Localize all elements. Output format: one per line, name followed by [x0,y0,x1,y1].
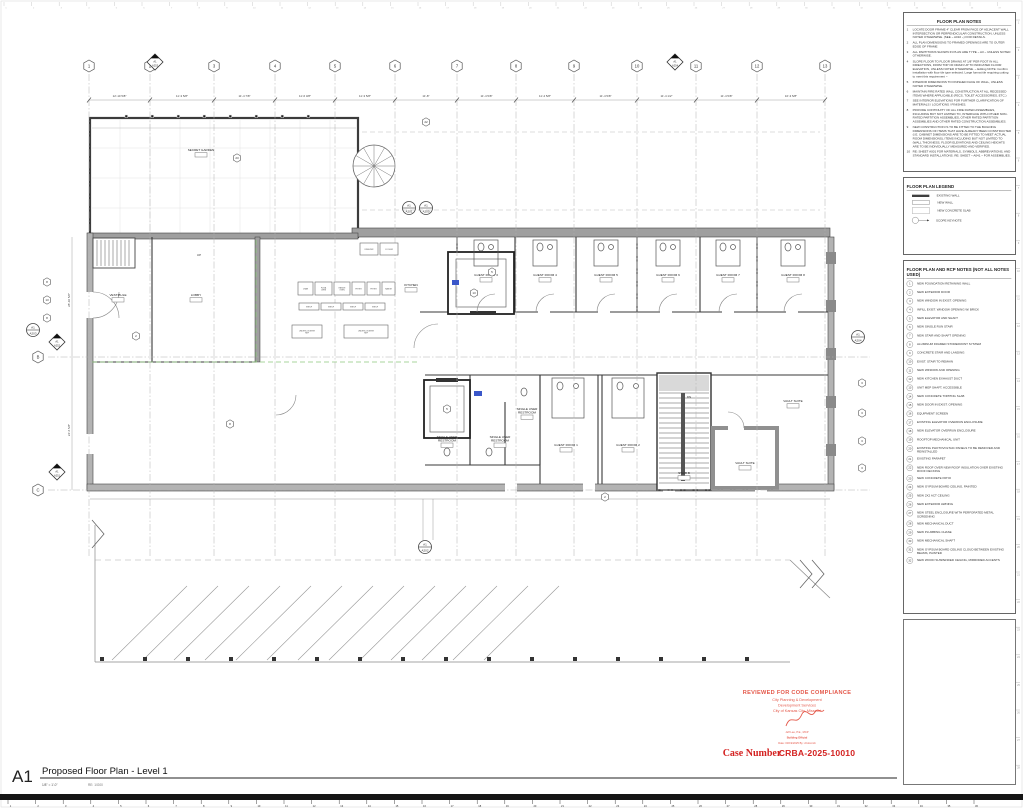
parking-bumper [702,657,706,661]
floor-plan-note: 10RE: SHEET A001 FOR MATERIALS, SYMBOLS,… [907,150,1012,158]
keynote-hexagon: 31 [907,547,913,553]
keynote-hexagon: 19 [907,437,913,443]
keynote-hexagon: 27 [907,510,913,516]
floor-plan-notes-title: FLOOR PLAN NOTES [907,19,1012,26]
parking-bumper [358,657,362,661]
room-tag-box [787,278,799,282]
stair-a [93,238,135,268]
marker-sheet: A203 [29,332,36,336]
keynote-hexagon: 14 [907,393,913,399]
floor-plan-notes-panel: FLOOR PLAN NOTES 1LOCATE DOOR FRAME 4" C… [903,12,1016,172]
equipment-label: RANGE [385,287,392,290]
keynote-hexagon: 5 [907,315,913,321]
keynote-hexagon: 25 [907,493,913,499]
parking-bumper [573,657,577,661]
marker-sheet: A253 [152,64,159,68]
equipment-label: SHELF [372,306,379,308]
keynote-hexagon: 8 [907,341,913,347]
equipment-label: OVEN [339,290,345,292]
vault-room [713,424,777,488]
grid-bubble-label: 10 [635,64,640,69]
keynote-number: 13 [472,291,476,295]
sheet-title: Proposed Floor Plan - Level 1 [42,766,168,777]
ref-note: 20EXISTING PHOTOVOLTAIC PANELS TO BE REM… [907,445,1012,453]
room-label: GUEST ROOM 6 [656,273,680,277]
grid-bubble-label: 12 [755,64,760,69]
stamp-signer: Jeff Lee, P.E., MCP [785,730,808,734]
new-concrete-slab-symbol [912,208,930,214]
floor-plan-note: 5INTERIOR DIMENSIONS TO FINISHED FACE OF… [907,80,1012,88]
keynote-hexagon: 7 [907,333,913,339]
room-tag-box [662,278,674,282]
marker-detail: A1 [856,333,860,337]
parking-bumper [143,657,147,661]
room-tag-box [480,278,492,282]
marker-sheet: A252 [54,344,61,348]
keynote-hexagon: 3 [907,298,913,304]
keynote-hexagon: 4 [907,307,913,313]
sheet-number: A1 [12,767,33,786]
room-label: GUEST ROOM 5 [594,273,618,277]
stamp-line4: City of Kansas City, Missouri [773,709,821,713]
keynote-hexagon: 30 [907,538,913,544]
dimension-label: 11'-4 7/8" [239,94,251,98]
ref-note: 14NEW CONCRETE TOPPING SLAB [907,393,1012,399]
keynote-hexagon: 23 [907,475,913,481]
parking-bumper [186,657,190,661]
case-number-value: CRBA-2025-10010 [779,748,856,758]
parking-bumper [229,657,233,661]
room-label: KITCHEN [404,283,418,287]
parking-bumper [315,657,319,661]
keynote-hexagon: 22 [907,465,913,471]
dimension-label: 28'-10 5/8" [67,293,71,307]
room-tag-box [195,153,207,157]
keynote-hexagon: 9 [907,350,913,356]
room-tag-box [539,278,551,282]
keynote-hexagon: 2 [907,289,913,295]
room-label: GUEST ROOM 1 [554,443,578,447]
ref-note: 11NEW WINDOW AND OPENING [907,367,1012,373]
ref-note: 26NEW EXTERIOR AWNING [907,501,1012,507]
ref-notes-panel: FLOOR PLAN AND RCP NOTES (NOT ALL NOTES … [903,260,1016,614]
floor-plan-drawing: 12345678910111213BC 12'-10 5/8"11'-3 5/8… [0,0,1023,808]
ref-note: 23NEW CONCRETE PATIO [907,475,1012,481]
keynote-hexagon: 18 [907,428,913,434]
marker-detail: A1 [31,326,35,330]
keynote-hexagon: 21 [907,456,913,462]
floor-plan-legend-title: FLOOR PLAN LEGEND [907,184,1012,191]
keynote-hexagon: 29 [907,529,913,535]
grid-bubble-label: B [37,355,40,360]
scope-keynote-symbol [912,217,929,224]
keynote-hexagon: 17 [907,419,913,425]
ref-note: 32NEW WOOD SUSPENDED CEILING, MIRRORED A… [907,557,1012,563]
sheet-scale-bar [0,794,1023,800]
ref-note: 1NEW FOUNDATION RETAINING WALL [907,281,1012,287]
room-tag-box [739,466,751,470]
marker-sheet: A202 [421,549,428,553]
keynote-hexagon: 32 [907,557,913,563]
room-label: VESTIBULE [109,293,126,297]
dimension-label: 11'-3 5/8" [176,94,188,98]
stamp-line1: REVIEWED FOR CODE COMPLIANCE [743,690,851,696]
room-tag-box [787,404,799,408]
room-tag-box [560,448,572,452]
room-tag-box [405,288,417,292]
parking-bumper [530,657,534,661]
parking-bumper [272,657,276,661]
sheet-scale-ref: RE: 1/G00 [88,783,103,787]
annotation-text: DN [687,395,691,399]
ref-note: 9CONCRETE STAIR AND LANDING [907,350,1012,356]
ref-note: 7NEW STAIR AND SHAFT OPENING [907,333,1012,339]
keynote-hexagon: 15 [907,402,913,408]
legend-item: EXISTING WALL [912,194,1011,197]
dimension-label: 11'-4 5/8" [481,94,493,98]
room-label: SECRET GARDEN [188,148,215,152]
ref-note: 15NEW DOOR IN EXIST. OPENING [907,402,1012,408]
parking-bumper [745,657,749,661]
equipment-label: FREEZER [365,249,374,251]
floor-plan-note: 8PROVIDE CONTINUITY OF ALL FIRE RATED AS… [907,108,1012,123]
floor-plan-legend-panel: FLOOR PLAN LEGEND EXISTING WALLNEW WALLN… [903,177,1016,255]
floor-plan-note: 9NEW CONSTRUCTION IS TO BE FITTED TO THE… [907,125,1012,148]
dimension-label: 11'-4 5/8" [600,94,612,98]
ref-note: 28NEW MECHANICAL DUCT [907,521,1012,527]
ref-note: 10EXIST. STAIR TO REMAIN [907,359,1012,365]
dimension-label: 11'-4 5/8" [539,94,551,98]
keynote-hexagon: 11 [907,367,913,373]
keynote-hexagon: 26 [907,501,913,507]
dimension-label: 11'-4 1/2" [661,94,673,98]
keynote-hexagon: 13 [907,385,913,391]
ref-note: 8ALUMINUM FRAMED STOREFRONT SYSTEM [907,341,1012,347]
marker-detail: A1 [55,470,59,474]
ref-note: 12NEW KITCHEN EXHAUST DUCT [907,376,1012,382]
title-block-column: FLOOR PLAN NOTES 1LOCATE DOOR FRAME 4" C… [903,12,1016,790]
room-tag-box [441,443,453,447]
keynote-hexagon: 6 [907,324,913,330]
room-label: RESTROOM [491,438,509,442]
marker-sheet: A200 [422,210,429,214]
floor-plan-note: 7SEE INTERIOR ELEVATIONS FOR FURTHER CLA… [907,99,1012,107]
ref-note: 13UNIT MEP SHAFT, ACCESSIBLE [907,385,1012,391]
keynote-number: 22 [424,120,428,124]
keynote-hexagon: 12 [907,376,913,382]
equipment-label: COOLER [385,249,394,251]
floor-plan-note: 4SLOPE FLOOR TO FLOOR DRAINS AT 1/8" PER… [907,59,1012,78]
ref-note: 22NEW ROOF OVER NEW ROOF INSULATION OVER… [907,465,1012,473]
keynote-hexagon: 1 [907,281,913,287]
equipment-label: FRYER [355,288,362,290]
room-label: RESTROOM [438,438,456,442]
highlight-mark [474,391,482,396]
marker-sheet: A201 [405,210,412,214]
equipment-label: SHELF [306,306,313,308]
equipment-label: FRYER [370,288,377,290]
room-tag-box [678,476,690,480]
stamp-date-line: Date: 03/19/2025 By: cholcomb [778,741,816,745]
drawing-sheet: 12345678910111213BC 12'-10 5/8"11'-3 5/8… [0,0,1023,808]
room-label: GUEST ROOM 7 [716,273,740,277]
grid-bubble-label: 11 [694,64,699,69]
equipment-label: OVEN [321,290,327,292]
empty-panel [903,619,1016,785]
parking-bumper [444,657,448,661]
grid-bubble-label: 13 [823,64,828,69]
ref-notes-title: FLOOR PLAN AND RCP NOTES (NOT ALL NOTES … [907,267,1012,279]
ref-note: 16EQUIPMENT SCREEN [907,411,1012,417]
room-tag-box [190,298,202,302]
floor-plan-note: 6MAINTAIN FIRE RATED WALL CONSTRUCTION A… [907,90,1012,98]
dimension-label: 11'-6 3/8" [299,94,311,98]
room-label: VAULT SUITE [735,461,754,465]
room-tag-box [722,278,734,282]
marker-detail: A1 [407,204,411,208]
ref-note: 17EXISTING ELEVATOR OVERRUN ENCLOSURE [907,419,1012,425]
dimension-label: 10'-3 5/8" [785,94,797,98]
ref-note: 5NEW ELEVATOR AND SHAFT [907,315,1012,321]
parking-bumper [401,657,405,661]
highlight-mark [452,280,459,285]
keynote-hexagon: 24 [907,484,913,490]
marker-detail: A1 [424,204,428,208]
marker-detail: A1 [423,543,427,547]
ref-note: 2NEW EXTERIOR DOOR [907,289,1012,295]
marker-sheet: A204 [854,339,861,343]
floor-plan-note: 2ALL PLAN DIMENSIONS TO FRAMED OPENINGS … [907,41,1012,49]
keynote-hexagon: 20 [907,445,913,451]
keynote-hexagon: 28 [907,521,913,527]
ref-note: 24NEW GYPSUM BOARD CEILING, PAINTED [907,484,1012,490]
ref-note: 21EXISTING PARAPET [907,456,1012,462]
equipment-label: SHELF [350,306,357,308]
parking-bumper [616,657,620,661]
room-label: GUEST ROOM 4 [533,273,557,277]
room-tag-box [521,415,533,419]
parking-bumper [487,657,491,661]
parking-bumper [659,657,663,661]
room-label: GUEST ROOM 8 [781,273,805,277]
room-label: GUEST ROOM 2 [616,443,640,447]
stamp-signer-title: Building Official [787,736,808,740]
room-tag-box [494,443,506,447]
ref-note: 6NEW SINGLE RUN STAIR [907,324,1012,330]
keynote-number: 23 [235,156,239,160]
stamp-line3: Development Services [778,704,816,708]
equipment-label: CHAR [303,287,309,290]
legend-item: NEW WALL [912,201,1011,205]
marker-detail: A1 [153,60,157,64]
dimension-label: 24'-6 5/8" [67,424,71,436]
dimension-label: 11'-3 5/8" [359,94,371,98]
room-tag-box [112,298,124,302]
legend-item: SCOPE KEYNOTE [912,217,1011,224]
room-tag-box [600,278,612,282]
legend-item: NEW CONCRETE SLAB [912,208,1011,214]
stamp-line2: City Planning & Development [772,698,822,702]
ref-note: 25NEW 2X2 ACT CEILING [907,493,1012,499]
marker-detail: A1 [55,340,59,344]
room-label: VAULT SUITE [783,399,802,403]
dimension-label: 11'-8" [422,94,429,98]
new-wall-symbol [912,201,930,205]
equipment-label: SHELF [328,306,335,308]
ref-note: 4INFILL EXIST. WINDOW OPENING W/ BRICK [907,307,1012,313]
keynote-hexagon: 10 [907,359,913,365]
ref-note: 27NEW STEEL ENCLOSURE WITH PERFORATED ME… [907,510,1012,518]
marker-detail: A1 [673,60,677,64]
marker-sheet: A251 [54,474,61,478]
ref-note: 18NEW ELEVATOR OVERRUN ENCLOSURE [907,428,1012,434]
floor-plan-note: 3ALL PARTITIONS SHOWN IN PLAN ARE TYPE ~… [907,50,1012,58]
keynote-number: 13 [45,298,49,302]
room-label: RESTROOM [518,410,536,414]
ref-note: 31NEW GYPSUM BOARD CEILING CLOUD BETWEEN… [907,547,1012,555]
ref-note: 29NEW PLUMBING CHASE [907,529,1012,535]
existing-wall-symbol [912,194,929,196]
room-label: LOBBY [191,293,201,297]
parking-bumper [100,657,104,661]
ref-note: 19ROOFTOP MECHANICAL UNIT [907,437,1012,443]
ref-note: 30NEW MECHANICAL SHAFT [907,538,1012,544]
room-tag-box [622,448,634,452]
annotation-text: UP [197,253,201,257]
roof-garden-area [90,115,395,237]
ref-note: 3NEW WINDOW IN EXIST. OPENING [907,298,1012,304]
dimension-label: 11'-4 5/8" [721,94,733,98]
keynote-hexagon: 16 [907,411,913,417]
sheet-scale: 1/8" = 1'-0" [42,783,58,787]
marker-sheet: A254 [672,64,679,68]
case-number-label: Case Number [723,748,782,759]
dimension-label: 12'-10 5/8" [113,94,127,98]
room-label: STAIR B [678,471,690,475]
grid-bubble-label: C [36,488,39,493]
floor-plan-note: 1LOCATE DOOR FRAME 4" CLEAR FROM FACE OF… [907,28,1012,39]
